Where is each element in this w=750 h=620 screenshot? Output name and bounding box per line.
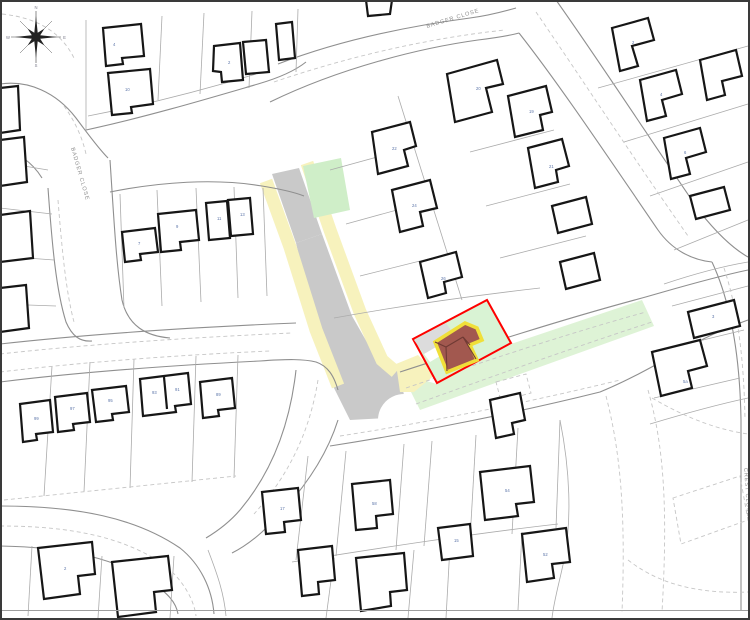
compass-letter-e: E <box>63 35 66 40</box>
compass-letter-s: S <box>35 63 38 68</box>
house-number: 95 <box>108 398 113 403</box>
building <box>0 137 27 186</box>
house-number: 22 <box>392 146 397 151</box>
building <box>228 198 253 236</box>
house-number: 24 <box>412 203 417 208</box>
house-number: 89 <box>216 392 221 397</box>
house-number: 91 <box>175 387 180 392</box>
house-number: 52 <box>543 552 548 557</box>
house-number: 19 <box>529 109 534 114</box>
building <box>366 0 392 16</box>
building <box>276 22 295 60</box>
building <box>0 285 29 332</box>
building <box>0 86 20 133</box>
house-number: 13 <box>240 212 245 217</box>
house-number: 58 <box>372 501 377 506</box>
house-number: 93 <box>152 390 157 395</box>
house-number: 15 <box>454 538 459 543</box>
compass-letter-w: W <box>6 35 10 40</box>
house-number: 97 <box>70 406 75 411</box>
house-number: 10 <box>125 87 130 92</box>
house-number: 17 <box>280 506 285 511</box>
building <box>0 211 33 262</box>
building <box>243 40 269 74</box>
house-number: 99 <box>34 416 39 421</box>
house-number: 21 <box>549 164 554 169</box>
house-number: 26 <box>441 276 446 281</box>
house-number: 5a <box>683 379 688 384</box>
map-canvas: BADGER CLOSE BADGER CLOSE CREST CLOSE 41… <box>0 0 750 620</box>
house-number: 11 <box>217 216 222 221</box>
house-number: 20 <box>476 86 481 91</box>
compass-letter-n: N <box>34 5 37 10</box>
location-plan: BADGER CLOSE BADGER CLOSE CREST CLOSE 41… <box>0 0 750 620</box>
house-number: 54 <box>505 488 510 493</box>
